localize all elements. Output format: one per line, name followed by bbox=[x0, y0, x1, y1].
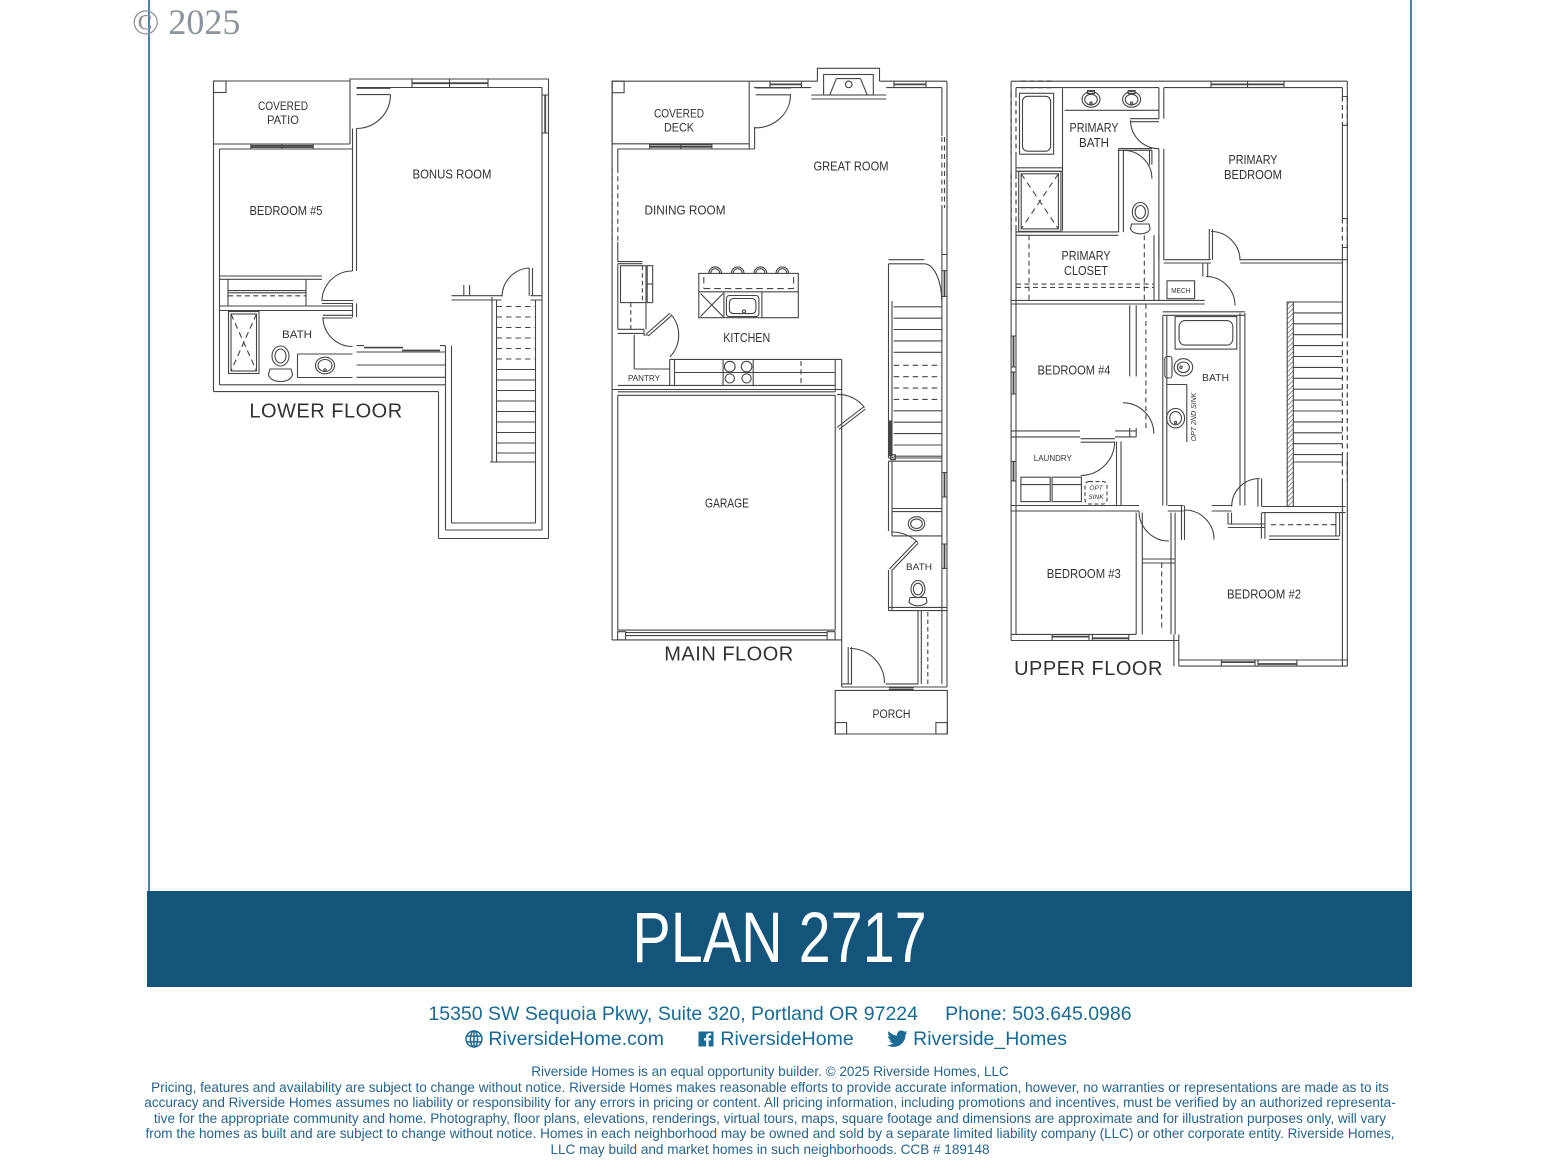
svg-text:DINING ROOM: DINING ROOM bbox=[645, 203, 726, 218]
svg-text:BONUS ROOM: BONUS ROOM bbox=[413, 167, 492, 182]
svg-text:LOWER FLOOR: LOWER FLOOR bbox=[249, 401, 402, 423]
svg-text:GREAT ROOM: GREAT ROOM bbox=[814, 159, 889, 174]
svg-text:MAIN FLOOR: MAIN FLOOR bbox=[664, 644, 793, 666]
svg-text:LAUNDRY: LAUNDRY bbox=[1034, 453, 1072, 463]
svg-text:BEDROOM #2: BEDROOM #2 bbox=[1227, 587, 1301, 602]
svg-text:OPT: OPT bbox=[1089, 485, 1103, 492]
svg-text:BATH: BATH bbox=[282, 329, 312, 341]
svg-text:BEDROOM #5: BEDROOM #5 bbox=[250, 203, 323, 218]
svg-text:DECK: DECK bbox=[664, 123, 694, 135]
svg-text:SINK: SINK bbox=[1088, 494, 1104, 501]
svg-text:PRIMARY: PRIMARY bbox=[1070, 121, 1120, 135]
svg-text:CLOSET: CLOSET bbox=[1064, 264, 1108, 278]
svg-text:BATH: BATH bbox=[906, 562, 932, 573]
svg-text:BEDROOM: BEDROOM bbox=[1224, 168, 1282, 182]
svg-text:GARAGE: GARAGE bbox=[705, 496, 749, 511]
svg-text:PRIMARY: PRIMARY bbox=[1229, 153, 1279, 167]
svg-text:BEDROOM #3: BEDROOM #3 bbox=[1047, 566, 1121, 581]
svg-text:UPPER FLOOR: UPPER FLOOR bbox=[1014, 658, 1163, 680]
svg-text:KITCHEN: KITCHEN bbox=[723, 330, 770, 345]
svg-text:PORCH: PORCH bbox=[873, 707, 911, 721]
svg-text:MECH: MECH bbox=[1171, 286, 1190, 295]
svg-text:COVERED: COVERED bbox=[654, 109, 704, 121]
svg-text:PATIO: PATIO bbox=[267, 115, 299, 127]
svg-text:BATH: BATH bbox=[1079, 136, 1109, 150]
svg-text:BATH: BATH bbox=[1202, 372, 1229, 384]
svg-text:BEDROOM #4: BEDROOM #4 bbox=[1038, 363, 1111, 378]
svg-text:PANTRY: PANTRY bbox=[628, 373, 660, 383]
svg-text:OPT 2ND SINK: OPT 2ND SINK bbox=[1191, 392, 1198, 441]
svg-text:COVERED: COVERED bbox=[258, 101, 308, 113]
svg-text:PRIMARY: PRIMARY bbox=[1062, 249, 1112, 263]
